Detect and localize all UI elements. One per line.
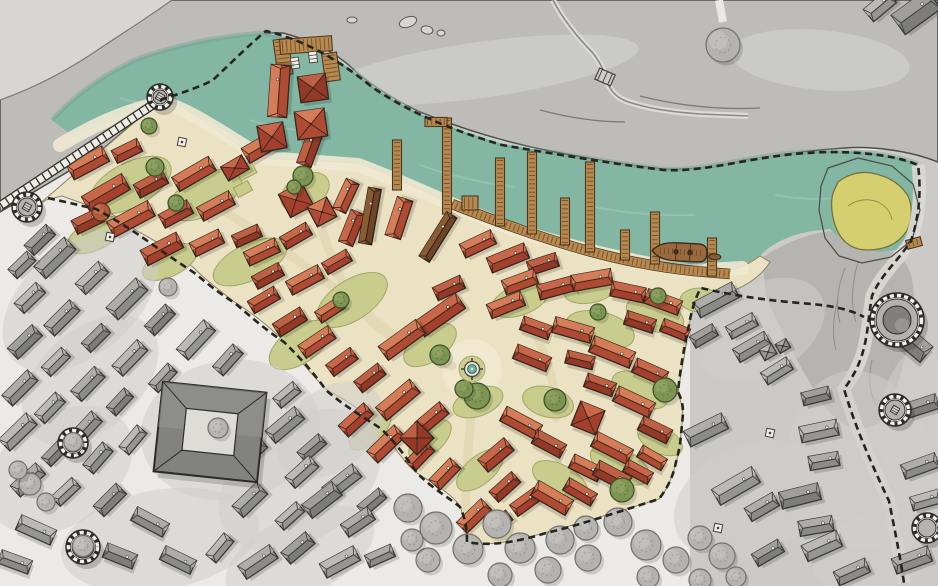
shrine-marker	[105, 232, 114, 241]
shrine-marker	[713, 523, 722, 532]
red-building	[294, 108, 331, 144]
shrine-marker	[765, 428, 774, 437]
city-map[interactable]	[0, 0, 938, 586]
pier	[586, 162, 595, 252]
red-building	[257, 121, 291, 156]
map-viewport	[0, 0, 938, 586]
shrine-marker	[177, 137, 186, 146]
pier	[528, 152, 537, 234]
pier	[621, 230, 630, 260]
dock-planks	[462, 196, 478, 210]
red-building	[297, 73, 332, 107]
red-building	[268, 61, 295, 117]
pier	[393, 140, 402, 190]
pier	[561, 198, 570, 245]
pier	[496, 158, 505, 226]
pier	[443, 118, 452, 214]
fountain	[459, 356, 485, 382]
